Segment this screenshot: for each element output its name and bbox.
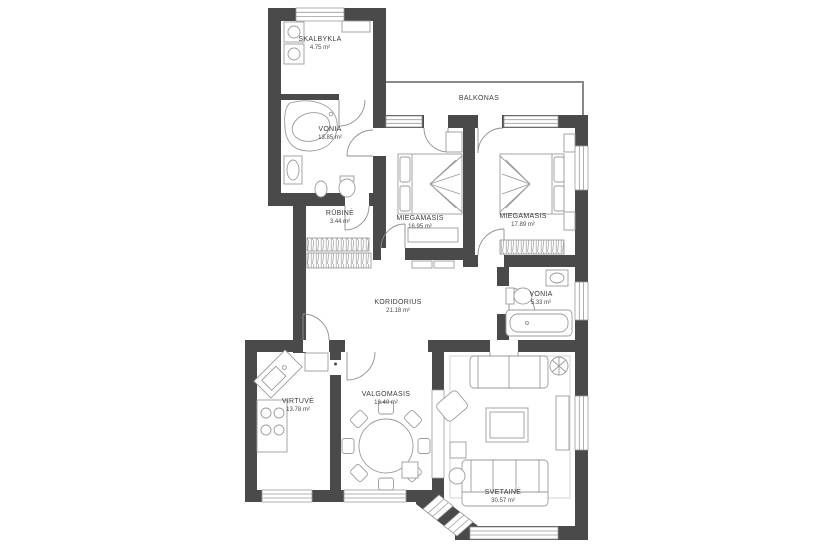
- dining-furniture: [342, 402, 430, 490]
- bathroom1-fixtures: [284, 101, 355, 197]
- laundry-fixtures: [284, 21, 370, 64]
- bathroom2-fixtures: [506, 270, 572, 336]
- balcony-outline: [375, 82, 583, 118]
- living-room-furniture: [435, 356, 570, 506]
- floorplan-canvas: SKALBYKLA 4.75 m² VONIA 13.85 m² RŪBINĖ …: [0, 0, 820, 547]
- hallway-cabinets: [412, 261, 454, 268]
- bedroom1-furniture: [398, 132, 462, 242]
- bedroom2-furniture: [500, 134, 575, 230]
- kitchen-fixtures: [254, 350, 337, 452]
- floorplan-graphic: [0, 0, 820, 547]
